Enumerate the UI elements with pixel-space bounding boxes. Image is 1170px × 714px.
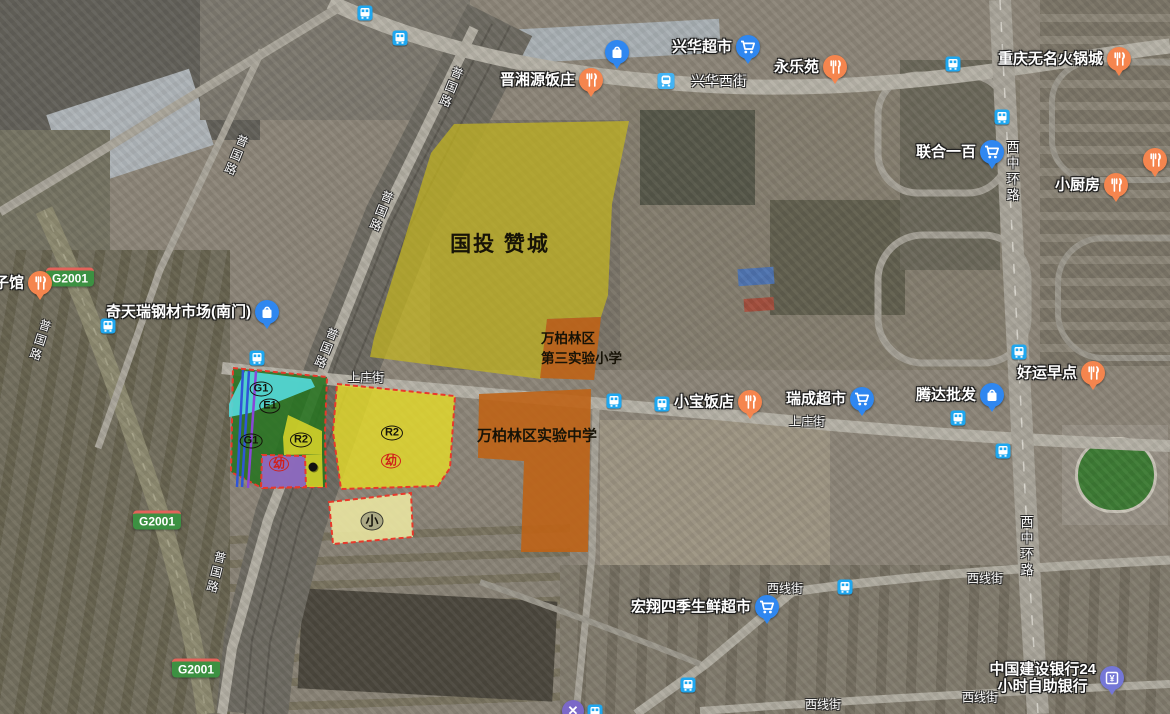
- zone-label-E1: E1: [259, 399, 280, 414]
- poi-label[interactable]: 晋湘源饭庄: [500, 72, 575, 89]
- road-label: 普国路: [25, 317, 55, 365]
- zone-label-G1: G1: [240, 434, 263, 449]
- road-label: 上庄街: [789, 413, 825, 430]
- poi-pin-cart-icon[interactable]: [755, 595, 779, 619]
- bus-stop-icon[interactable]: [101, 319, 116, 334]
- road-label: 普国路: [435, 64, 468, 112]
- poi-label[interactable]: 奇天瑞钢材市场(南门): [106, 304, 251, 321]
- poi-label[interactable]: 小宝饭店: [674, 394, 734, 411]
- zone-label-幼: 幼: [381, 454, 401, 469]
- poi-pin-restaurant-icon[interactable]: [1081, 361, 1105, 385]
- svg-text:¥: ¥: [1109, 674, 1114, 684]
- overlay-label: 国投 赞城: [450, 228, 550, 258]
- road-label: 西线街: [767, 580, 803, 597]
- overlay-label: 万柏林区 第三实验小学: [541, 327, 622, 367]
- bus-stop-icon[interactable]: [681, 678, 696, 693]
- bus-stop-icon[interactable]: [393, 31, 408, 46]
- poi-pin-bag-icon[interactable]: [255, 300, 279, 324]
- bus-stop-icon[interactable]: [250, 351, 265, 366]
- road-label: 普国路: [202, 549, 229, 597]
- bus-stop-icon[interactable]: [951, 411, 966, 426]
- bus-stop-icon[interactable]: [588, 705, 603, 714]
- poi-label[interactable]: 小厨房: [1055, 177, 1100, 194]
- map-dot-marker: [309, 463, 318, 472]
- metro-station-icon[interactable]: [658, 73, 675, 89]
- bus-stop-icon[interactable]: [1012, 345, 1027, 360]
- road-label: 兴华西街: [691, 71, 747, 91]
- poi-pin-x[interactable]: ✕: [562, 700, 584, 714]
- poi-label[interactable]: 瑞成超市: [786, 391, 846, 408]
- zone-label-R2: R2: [381, 426, 403, 441]
- road-label: 西中环路: [1017, 515, 1036, 579]
- poi-pin-restaurant-icon[interactable]: [1143, 148, 1167, 172]
- road-label: 西线街: [967, 570, 1003, 587]
- bus-stop-icon[interactable]: [655, 397, 670, 412]
- poi-pin-restaurant-icon[interactable]: [1107, 47, 1131, 71]
- poi-pin-restaurant-icon[interactable]: [28, 271, 52, 295]
- overlay-label: 万柏林区实验中学: [477, 425, 597, 446]
- poi-label[interactable]: 子馆: [0, 275, 24, 292]
- road-label: 西线街: [805, 696, 841, 713]
- road-label: 普国路: [220, 132, 253, 180]
- bus-stop-icon[interactable]: [995, 110, 1010, 125]
- poi-label[interactable]: 好运早点: [1017, 365, 1077, 382]
- map-canvas[interactable]: G1E1G1R2R2幼幼小国投 赞城万柏林区 第三实验小学万柏林区实验中学兴华西…: [0, 0, 1170, 714]
- poi-label[interactable]: 永乐苑: [774, 59, 819, 76]
- highway-badge-g2001: G2001: [46, 268, 94, 287]
- poi-pin-restaurant-icon[interactable]: [823, 55, 847, 79]
- bus-stop-icon[interactable]: [607, 394, 622, 409]
- poi-pin-bank-icon[interactable]: ¥: [1100, 666, 1124, 690]
- bus-stop-icon[interactable]: [946, 57, 961, 72]
- poi-label[interactable]: 腾达批发: [916, 387, 976, 404]
- road-label: 普国路: [365, 188, 398, 236]
- zone-label-G1: G1: [250, 382, 273, 397]
- poi-label[interactable]: 中国建设银行24 小时自助银行: [989, 661, 1096, 695]
- road-label: 普国路: [310, 325, 343, 373]
- bus-stop-icon[interactable]: [358, 6, 373, 21]
- highway-badge-g2001: G2001: [172, 659, 220, 678]
- zone-label-小: 小: [360, 512, 383, 531]
- poi-pin-bag-icon[interactable]: [980, 383, 1004, 407]
- road-label: 上庄街: [348, 369, 384, 386]
- poi-pin-cart-icon[interactable]: [736, 35, 760, 59]
- highway-badge-g2001: G2001: [133, 511, 181, 530]
- poi-pin-restaurant-icon[interactable]: [738, 390, 762, 414]
- poi-label[interactable]: 兴华超市: [672, 39, 732, 56]
- zone-label-幼: 幼: [269, 457, 289, 472]
- poi-pin-restaurant-icon[interactable]: [579, 68, 603, 92]
- road-label: 西中环路: [1003, 140, 1022, 204]
- bus-stop-icon[interactable]: [838, 580, 853, 595]
- poi-label[interactable]: 联合一百: [916, 144, 976, 161]
- bus-stop-icon[interactable]: [996, 444, 1011, 459]
- poi-label[interactable]: 重庆无名火锅城: [998, 51, 1103, 68]
- poi-pin-restaurant-icon[interactable]: [1104, 173, 1128, 197]
- zone-label-R2: R2: [290, 433, 312, 448]
- poi-label[interactable]: 宏翔四季生鲜超市: [631, 599, 751, 616]
- poi-pin-cart-icon[interactable]: [980, 140, 1004, 164]
- poi-pin-cart-icon[interactable]: [850, 387, 874, 411]
- poi-pin-bag-icon[interactable]: [605, 40, 629, 64]
